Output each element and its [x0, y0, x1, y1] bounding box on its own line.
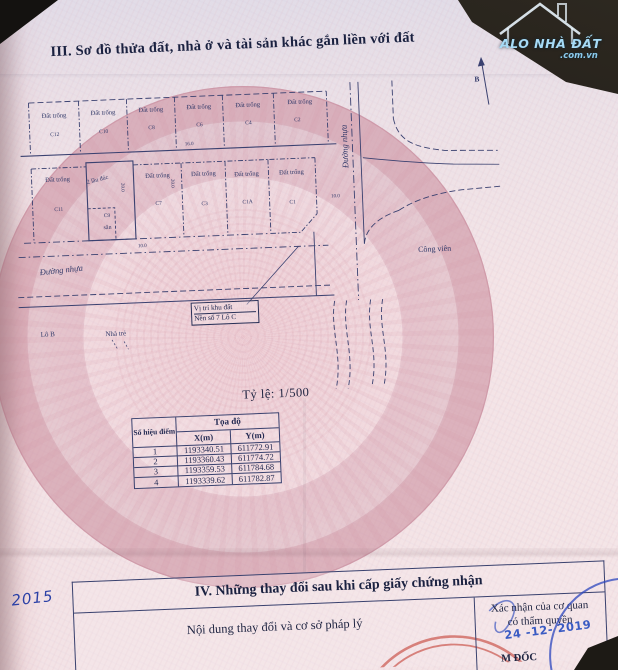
plot-code: C1 [289, 199, 296, 205]
cell-x: 1193339.62 [179, 474, 233, 486]
dimension-label: 10.0 [138, 244, 147, 249]
document-content: III. Sơ đồ thửa đất, nhà ở và tài sản kh… [0, 0, 618, 670]
director-title-partial: M ĐỐC [501, 652, 537, 664]
road-label: Đường nhựa [339, 125, 351, 169]
plot-code: C10 [99, 129, 108, 135]
yard-label: sân [103, 225, 111, 231]
plot-type: Đất trống [138, 106, 163, 114]
plot-type: Đất trống [90, 109, 115, 117]
plot-code: C2 [294, 117, 301, 123]
plot-type: Đất trống [234, 170, 259, 178]
plot-type: Đất trống [145, 172, 170, 180]
dimension-label: 20.0 [119, 183, 124, 192]
subject-plot-callout: Vị trí khu đất Nền số 7 Lô C [191, 300, 260, 326]
section4-left-header: Nội dung thay đổi và cơ sở pháp lý [75, 612, 475, 643]
plot-type: Đất trống [279, 169, 304, 177]
plot-code: C8 [148, 125, 155, 131]
cell-point: 4 [135, 476, 179, 488]
plot-code: C7 [155, 201, 162, 207]
dimension-label: 20.0 [169, 179, 174, 188]
kindergarten-label: Nhà trẻ [105, 329, 126, 338]
alo-nha-dat-logo: ALO NHÀ ĐẤT .com.vn [488, 0, 618, 78]
plot-type: Đất trống [186, 103, 211, 111]
logo-domain: .com.vn [560, 51, 598, 61]
park-label: Công viên [418, 244, 451, 254]
plot-type: Đất trống [235, 101, 260, 109]
plot-code: C6 [196, 122, 203, 128]
plot-code: C4 [245, 120, 252, 126]
plot-code: C1A [242, 199, 253, 205]
plot-type: Đất trống [45, 176, 70, 184]
plot-code: C12 [50, 132, 59, 138]
plot-type: Đất trống [287, 98, 312, 106]
map-scale: Tỷ lệ: 1/500 [242, 385, 310, 403]
plot-type: Đất trống [42, 112, 67, 120]
col-header-point: Số hiệu điểm [132, 417, 177, 448]
plot-code: C9 [104, 213, 111, 219]
cell-y: 611782.87 [233, 472, 281, 484]
certificate-photo: III. Sơ đồ thửa đất, nhà ở và tài sản kh… [0, 0, 618, 670]
plot-code: C3 [201, 201, 208, 207]
logo-text: ALO NHÀ ĐẤT [500, 36, 601, 51]
dimension-label: 10.0 [331, 194, 340, 199]
lot-b-label: Lô B [41, 330, 56, 339]
coordinate-table: Số hiệu điểm Tọa độ X(m) Y(m) 1 1193340.… [131, 412, 282, 489]
plot-code: C11 [54, 207, 63, 213]
plot-type: Đất trống [191, 170, 216, 178]
dimension-label: 16.0 [185, 142, 194, 147]
north-indicator: B [474, 74, 479, 83]
callout-line2: Nền số 7 Lô C [194, 313, 236, 323]
